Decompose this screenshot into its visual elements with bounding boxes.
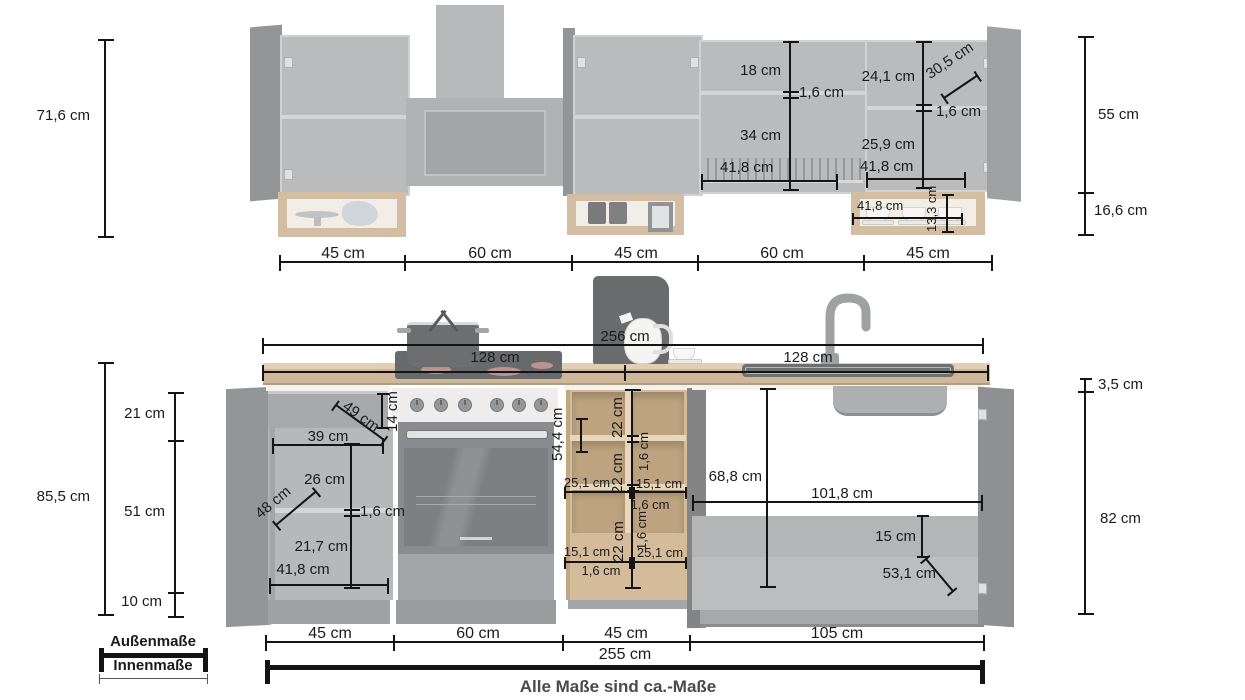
tick xyxy=(916,104,932,106)
dim-label: 128 cm xyxy=(465,350,525,367)
cabinet-shelf xyxy=(282,115,408,119)
hinge-icon xyxy=(284,57,293,68)
caption: Alle Maße sind ca.-Maße xyxy=(460,678,776,697)
dim-line-dish-cabinet xyxy=(789,42,791,190)
dim-line-shelf-top-left xyxy=(565,491,630,493)
dim-label: 60 cm xyxy=(752,245,812,263)
dim-label: 71,6 cm xyxy=(28,108,90,125)
dim-label: 25,9 cm xyxy=(853,137,915,154)
dim-line-sink-plinth xyxy=(921,516,923,557)
dim-label: 1,6 cm xyxy=(936,104,981,121)
tick xyxy=(689,635,691,651)
oven-knob xyxy=(490,398,504,412)
wall-open-shelf-1 xyxy=(278,192,406,237)
dim-line-worktop-left xyxy=(263,371,625,373)
shelf-opening xyxy=(631,392,684,435)
vase-icon xyxy=(342,201,378,226)
dim-label: 82 cm xyxy=(1100,511,1141,528)
dim-line-wall-cabinet-height xyxy=(1084,37,1086,193)
dim-label: 51 cm xyxy=(107,504,165,521)
dim-line-total-height-upper xyxy=(104,40,106,237)
dim-label: 21 cm xyxy=(107,406,165,423)
dim-line-sink-inner-height xyxy=(766,389,768,587)
dim-label: 15,1 cm xyxy=(557,545,617,559)
tick xyxy=(863,255,865,271)
dim-label: 21,7 cm xyxy=(284,539,348,556)
dim-label: 101,8 cm xyxy=(805,486,879,503)
dim-line-inner-heights xyxy=(174,393,176,617)
dim-label: 26 cm xyxy=(287,472,345,489)
shelf-plinth xyxy=(568,600,688,609)
tick xyxy=(168,592,184,594)
dim-label: 14 cm xyxy=(385,392,402,432)
dim-label: 128 cm xyxy=(778,350,838,367)
dim-label: 13,3 cm xyxy=(925,194,939,232)
oven-knob xyxy=(410,398,424,412)
saucer-icon xyxy=(862,220,894,225)
dim-label: 45 cm xyxy=(606,245,666,263)
tick xyxy=(783,91,799,93)
oven-knob xyxy=(512,398,526,412)
hinge-icon xyxy=(284,169,293,180)
dim-line-right-cabinet xyxy=(922,42,924,188)
dim-label: 41,8 cm xyxy=(857,199,903,213)
dim-label: 60 cm xyxy=(460,245,520,263)
dim-line-wall-shelf-height xyxy=(1084,193,1086,235)
dim-line-dish-inner-width xyxy=(702,180,837,182)
dim-label: 45 cm xyxy=(898,245,958,263)
tick xyxy=(562,635,564,651)
dim-line-base-compartments xyxy=(350,444,352,588)
wall-cabinet-2 xyxy=(573,35,703,196)
sink-cabinet-base xyxy=(692,557,984,610)
wall-cabinet-right-door xyxy=(987,26,1021,202)
dim-label: 105 cm xyxy=(807,625,867,643)
oven-knob xyxy=(534,398,548,412)
hinge-icon xyxy=(577,57,586,68)
dim-label: 16,6 cm xyxy=(1094,203,1147,220)
dim-label: 256 cm xyxy=(595,329,655,346)
canister-icon xyxy=(609,202,627,224)
hinge-icon xyxy=(690,57,699,68)
dim-label: 85,5 cm xyxy=(26,489,90,506)
picture-frame-icon xyxy=(648,202,673,232)
canister-icon xyxy=(588,202,606,224)
dim-line-drawer-inner-width xyxy=(273,444,383,446)
tick xyxy=(783,97,799,99)
dim-label: 25,1 cm xyxy=(557,476,617,490)
oven-knob xyxy=(434,398,448,412)
oven-door xyxy=(398,422,554,554)
oven-lower-band xyxy=(398,554,554,600)
oven-control-panel xyxy=(392,388,558,422)
tick xyxy=(344,515,360,517)
legend-inner-line xyxy=(100,678,207,679)
dim-line-carcass-height xyxy=(1084,392,1086,614)
wall-cabinet-1-door xyxy=(250,25,282,202)
tick xyxy=(393,635,395,651)
dim-line-shelf-top-right xyxy=(634,491,686,493)
tick xyxy=(697,255,699,271)
dim-label: 34 cm xyxy=(723,128,781,145)
dim-label: 22 cm xyxy=(610,398,627,438)
tick xyxy=(404,255,406,271)
dim-label: 54,4 cm xyxy=(550,405,567,461)
wall-open-shelf-2 xyxy=(567,194,684,235)
dim-line-base-inner-width xyxy=(270,584,388,586)
dim-label: 45 cm xyxy=(300,625,360,643)
dim-label: 1,6 cm xyxy=(799,85,844,102)
dim-label: 41,8 cm xyxy=(720,160,773,177)
dim-line-total-width xyxy=(266,665,984,670)
saucer-icon xyxy=(668,359,702,364)
dim-label: 25,1 cm xyxy=(632,546,688,560)
kitchen-dimension-diagram: 71,6 cm 55 cm 16,6 cm 45 cm 60 cm 45 cm … xyxy=(0,0,1245,700)
oven-window xyxy=(404,448,548,546)
dim-line-cup-shelf-height xyxy=(946,195,948,232)
wall-cabinet-1 xyxy=(280,35,410,196)
tick xyxy=(168,440,184,442)
dim-label: 68,8 cm xyxy=(700,469,762,486)
dim-label: 1,6 cm xyxy=(622,498,678,512)
dim-line-right-inner-width xyxy=(867,178,965,180)
dim-label: 1,6 cm xyxy=(637,433,651,471)
dim-label: 15 cm xyxy=(856,529,916,546)
base-cabinet-plinth xyxy=(268,600,390,624)
oven-rack-line xyxy=(416,504,536,505)
burner-glow xyxy=(531,362,553,369)
oven-knob xyxy=(458,398,472,412)
kitchen-photo-layer xyxy=(0,0,1245,700)
dim-line-total-height-lower xyxy=(104,363,106,615)
dim-label: 10 cm xyxy=(104,594,162,611)
dim-line-shelf-inner-height xyxy=(580,419,582,452)
hinge-icon xyxy=(978,583,987,595)
cabinet-shelf xyxy=(575,115,701,119)
dim-line-shelf-bottom-right xyxy=(634,561,686,563)
dim-line-drawer-height xyxy=(381,394,383,428)
tick xyxy=(571,255,573,271)
sink-basin xyxy=(833,386,947,416)
hood-filter xyxy=(424,110,546,176)
dim-label: 1,6 cm xyxy=(573,564,629,578)
dim-label: 45 cm xyxy=(313,245,373,263)
dim-label: 15,1 cm xyxy=(631,477,687,491)
dim-label: 55 cm xyxy=(1098,107,1139,124)
sink-cabinet-floor xyxy=(692,516,984,557)
dim-label: 41,8 cm xyxy=(860,159,913,176)
dim-label: 41,8 cm xyxy=(271,562,335,579)
range-hood-chimney xyxy=(436,5,504,100)
tick xyxy=(344,509,360,511)
dim-label: 18 cm xyxy=(723,63,781,80)
dim-label: 60 cm xyxy=(448,625,508,643)
dim-label: 45 cm xyxy=(596,625,656,643)
sink-cabinet-right-door xyxy=(978,387,1014,628)
oven-brand-mark xyxy=(460,537,492,540)
oven-rack-line xyxy=(416,496,536,497)
dim-line-worktop-right xyxy=(625,371,988,373)
dim-label: 3,5 cm xyxy=(1098,377,1143,394)
oven-plinth xyxy=(396,600,556,624)
tick xyxy=(916,110,932,112)
range-hood xyxy=(406,98,564,186)
pot-side-handle xyxy=(397,328,411,333)
pot-side-handle xyxy=(475,328,489,333)
cake-stand-stem xyxy=(314,217,321,226)
coffee-cup xyxy=(668,348,702,364)
legend-outer-label: Außenmaße xyxy=(98,634,208,651)
oven-handle xyxy=(406,430,548,439)
legend-inner-label: Innenmaße xyxy=(98,658,208,675)
dim-label: 24,1 cm xyxy=(853,69,915,86)
dim-label: 1,6 cm xyxy=(360,504,405,521)
dim-label: 53,1 cm xyxy=(874,566,936,583)
dim-label: 255 cm xyxy=(595,646,655,664)
hinge-icon xyxy=(978,409,987,421)
